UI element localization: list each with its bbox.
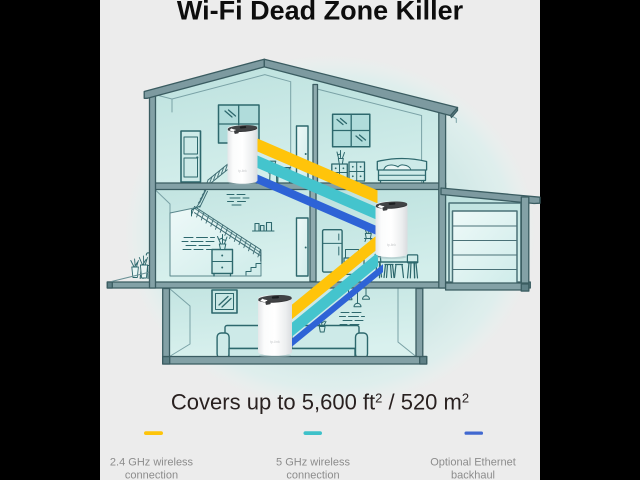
svg-text:tp-link: tp-link	[387, 243, 396, 247]
svg-text:tp-link: tp-link	[270, 340, 280, 344]
svg-text:Optional Ethernet: Optional Ethernet	[430, 457, 516, 469]
svg-text:Wi-Fi Dead Zone Killer: Wi-Fi Dead Zone Killer	[177, 0, 464, 26]
svg-text:connection: connection	[125, 470, 178, 480]
svg-text:5 GHz wireless: 5 GHz wireless	[276, 457, 350, 469]
svg-text:connection: connection	[286, 470, 339, 480]
svg-text:tp-link: tp-link	[238, 169, 247, 173]
svg-text:2.4 GHz wireless: 2.4 GHz wireless	[110, 457, 194, 469]
svg-text:backhaul: backhaul	[451, 470, 495, 480]
svg-text:Covers up to 5,600 ft2 / 520 m: Covers up to 5,600 ft2 / 520 m2	[171, 390, 469, 415]
